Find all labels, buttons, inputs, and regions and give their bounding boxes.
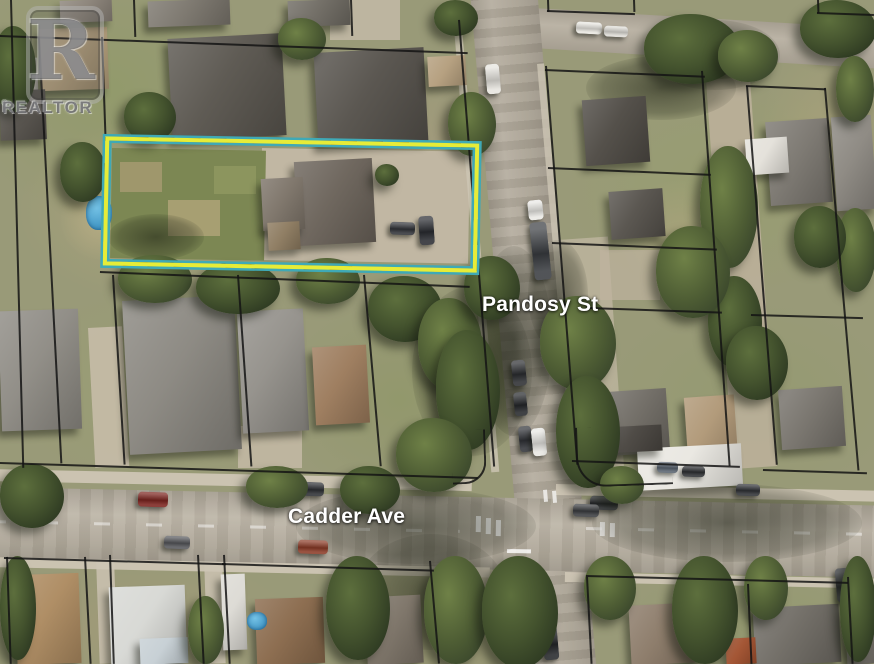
building-roof <box>312 345 370 426</box>
tree-canopy <box>278 18 326 60</box>
tree-canopy <box>60 142 106 202</box>
property-highlight-outline <box>103 136 479 272</box>
aerial-photo: Pandosy St Cadder Ave R REALTOR® <box>0 0 874 664</box>
realtor-logo-letter: R <box>26 4 96 98</box>
realtor-watermark: R REALTOR® <box>2 4 108 122</box>
tree-canopy <box>718 30 778 82</box>
vehicle <box>736 484 760 497</box>
vehicle <box>527 199 544 220</box>
building-roof <box>778 386 846 450</box>
parcel-boundary-line <box>817 0 819 13</box>
building-roof <box>0 309 82 432</box>
building-roof <box>831 115 874 212</box>
road-marking <box>507 549 531 553</box>
tree-canopy <box>672 556 738 664</box>
tree-canopy <box>726 326 788 400</box>
tree-canopy <box>836 56 874 122</box>
building-roof <box>314 47 429 147</box>
vehicle <box>531 427 548 456</box>
building-roof <box>255 597 325 664</box>
street-label-cadder: Cadder Ave <box>288 505 405 528</box>
tree-canopy <box>188 596 224 664</box>
vehicle <box>513 391 528 416</box>
building-roof <box>582 96 650 166</box>
tree-canopy <box>800 0 874 58</box>
building-roof <box>122 295 242 455</box>
parcel-boundary-line <box>633 0 635 12</box>
tree-canopy <box>744 556 788 620</box>
realtor-name: REALTOR <box>2 98 93 118</box>
swimming-pool <box>247 612 267 630</box>
vehicle <box>485 63 502 94</box>
tree-canopy <box>434 0 478 36</box>
vehicle <box>573 504 599 518</box>
tree-canopy <box>840 556 874 662</box>
tree-canopy <box>584 556 636 620</box>
vehicle <box>511 359 528 386</box>
realtor-watermark-text: REALTOR® <box>2 98 108 118</box>
tree-canopy <box>482 556 558 664</box>
tree-canopy <box>124 92 176 142</box>
vehicle <box>138 491 169 507</box>
building-roof <box>140 637 189 664</box>
vehicle <box>604 25 629 37</box>
parcel-boundary-corner <box>575 424 673 487</box>
tree-canopy <box>0 464 64 528</box>
paved-area <box>600 250 660 300</box>
tree-canopy <box>326 556 390 660</box>
building-roof <box>167 33 286 141</box>
vehicle <box>164 536 190 550</box>
vehicle <box>682 466 705 478</box>
street-label-pandosy: Pandosy St <box>482 293 598 316</box>
building-roof <box>148 0 231 27</box>
parcel-boundary-line <box>547 0 549 12</box>
vehicle <box>576 21 603 34</box>
tree-canopy <box>0 556 36 660</box>
building-roof <box>608 188 665 240</box>
vehicle <box>298 539 328 554</box>
